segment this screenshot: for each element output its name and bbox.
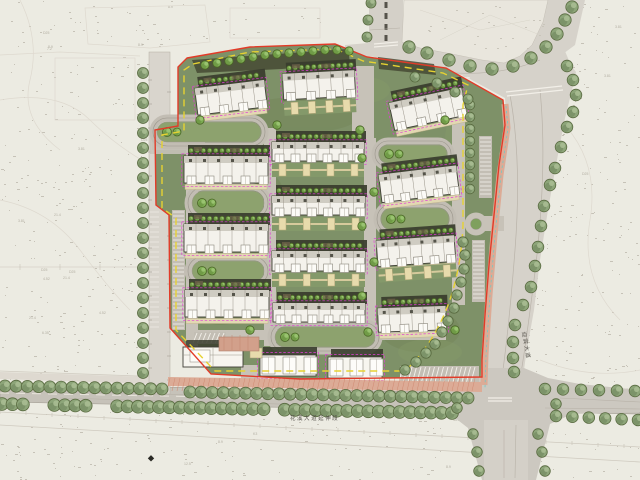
svg-text:花 溪 大 道 延 伸 段: 花 溪 大 道 延 伸 段: [290, 414, 338, 422]
svg-text:12.5: 12.5: [184, 462, 191, 466]
svg-text:3.81: 3.81: [604, 74, 611, 78]
svg-text:7.2: 7.2: [47, 47, 52, 51]
svg-text:K3: K3: [253, 432, 257, 436]
svg-text:3.81: 3.81: [18, 219, 25, 223]
svg-text:D25: D25: [41, 268, 47, 272]
svg-text:D25: D25: [43, 31, 49, 35]
svg-text:21.4: 21.4: [29, 316, 36, 320]
svg-text:3.81: 3.81: [615, 25, 622, 29]
svg-text:8.9: 8.9: [446, 465, 451, 469]
svg-text:D25: D25: [69, 270, 75, 274]
svg-text:D25: D25: [582, 172, 588, 176]
svg-text:3.81: 3.81: [78, 147, 85, 151]
svg-text:8.9: 8.9: [218, 440, 223, 444]
svg-text:21.4: 21.4: [63, 276, 70, 280]
svg-text:4.52: 4.52: [99, 311, 106, 315]
svg-text:4.52: 4.52: [43, 277, 50, 281]
svg-text:8.9: 8.9: [138, 43, 143, 47]
svg-text:21.4: 21.4: [54, 213, 61, 217]
svg-text:6.35: 6.35: [42, 331, 49, 335]
